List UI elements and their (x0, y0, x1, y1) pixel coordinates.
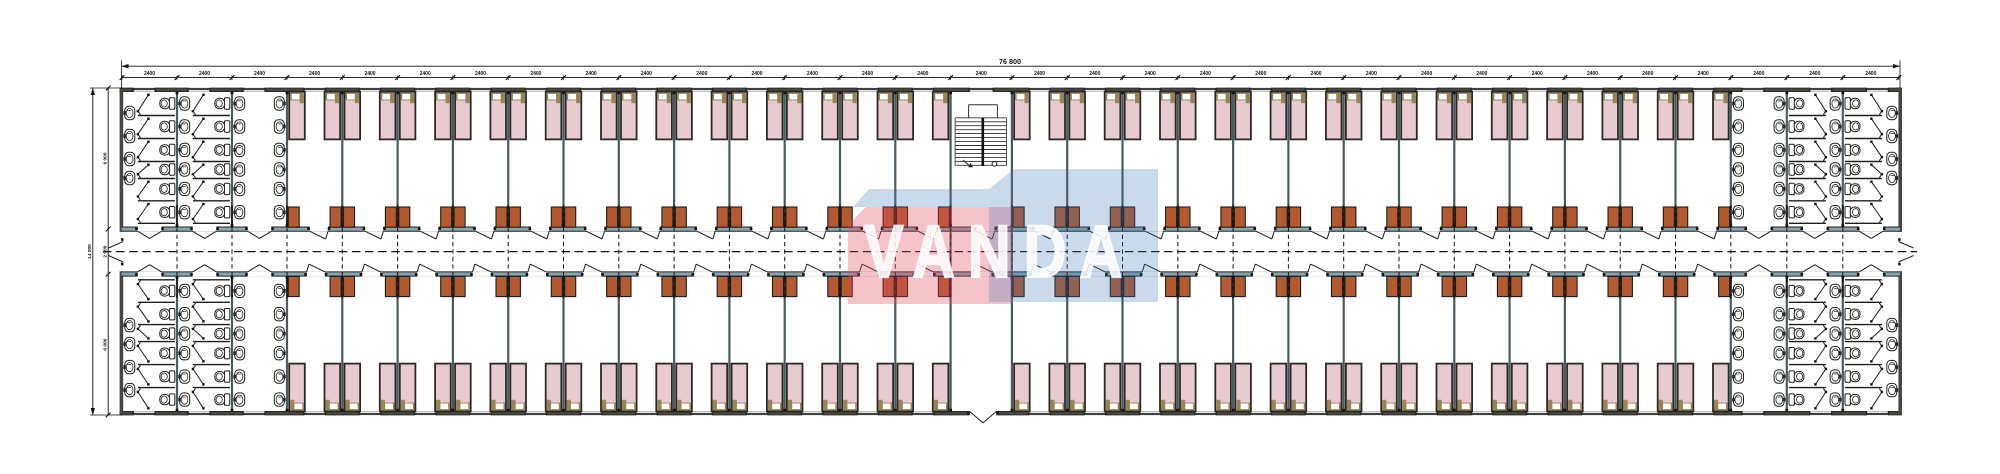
svg-text:2400: 2400 (1865, 71, 1876, 77)
svg-text:2400: 2400 (1698, 71, 1709, 77)
svg-text:14 000: 14 000 (87, 244, 93, 259)
svg-text:2 000: 2 000 (102, 245, 108, 257)
svg-text:2400: 2400 (696, 71, 707, 77)
svg-text:2400: 2400 (1532, 71, 1543, 77)
svg-text:2400: 2400 (364, 71, 375, 77)
svg-text:2400: 2400 (1255, 71, 1266, 77)
svg-text:2400: 2400 (586, 71, 597, 77)
svg-text:2400: 2400 (475, 71, 486, 77)
svg-text:VANDA: VANDA (864, 211, 1135, 294)
svg-text:76 800: 76 800 (999, 57, 1021, 66)
svg-text:2400: 2400 (1421, 71, 1432, 77)
svg-text:2400: 2400 (254, 71, 265, 77)
svg-text:2400: 2400 (309, 71, 320, 77)
svg-text:2400: 2400 (1476, 71, 1487, 77)
svg-text:6 000: 6 000 (102, 338, 108, 350)
svg-text:2400: 2400 (420, 71, 431, 77)
svg-text:2400: 2400 (1366, 71, 1377, 77)
svg-text:2400: 2400 (917, 71, 928, 77)
svg-text:2400: 2400 (1089, 71, 1100, 77)
svg-text:2400: 2400 (1753, 71, 1764, 77)
svg-text:2400: 2400 (1587, 71, 1598, 77)
svg-text:2400: 2400 (1145, 71, 1156, 77)
svg-text:2400: 2400 (1310, 71, 1321, 77)
svg-text:2400: 2400 (199, 71, 210, 77)
svg-text:2400: 2400 (751, 71, 762, 77)
svg-text:2400: 2400 (1809, 71, 1820, 77)
svg-text:2400: 2400 (862, 71, 873, 77)
svg-text:2400: 2400 (641, 71, 652, 77)
svg-text:2400: 2400 (807, 71, 818, 77)
svg-text:2400: 2400 (144, 71, 155, 77)
svg-text:2400: 2400 (1034, 71, 1045, 77)
svg-text:2400: 2400 (1642, 71, 1653, 77)
svg-text:2400: 2400 (530, 71, 541, 77)
svg-text:2400: 2400 (976, 71, 987, 77)
svg-text:2400: 2400 (1200, 71, 1211, 77)
svg-text:6 000: 6 000 (102, 152, 108, 164)
